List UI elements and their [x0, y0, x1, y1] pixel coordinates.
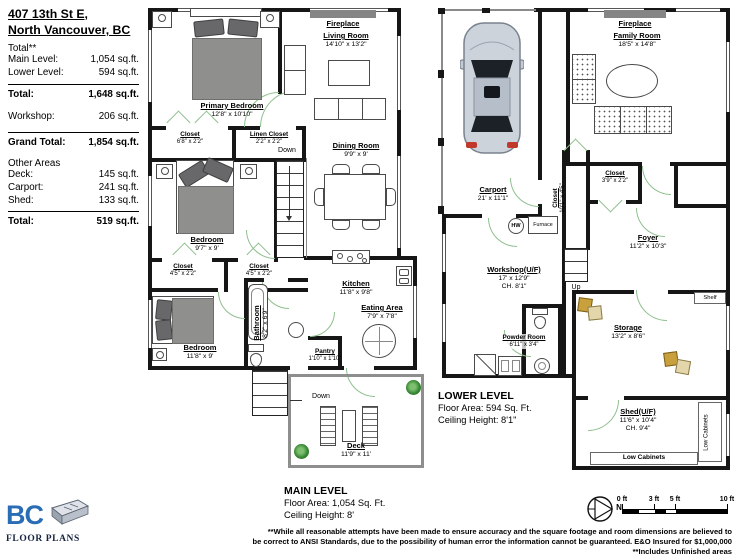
scale-tick-label: 10 ft — [717, 496, 736, 503]
scale-segment — [676, 510, 727, 513]
wall — [374, 366, 417, 370]
stair-rail — [306, 158, 307, 258]
area-row: Lower Level:594 sq.ft. — [8, 67, 139, 80]
wall — [148, 258, 162, 262]
scale-tick-label: 0 ft — [614, 496, 630, 503]
wall — [624, 396, 730, 400]
kitchen-sink — [396, 266, 412, 286]
window — [442, 234, 446, 272]
wall — [566, 8, 570, 164]
wall — [308, 366, 344, 370]
room-label-kitchen: Kitchen11'8" x 9'8" — [314, 280, 398, 297]
grand-total-row: Grand Total:1,854 sq.ft. — [8, 137, 139, 150]
room-dims: 11'2" x 10'3" — [606, 243, 690, 251]
chair — [386, 188, 396, 206]
room-name: Bathroom — [253, 293, 262, 353]
bed-headboard — [190, 8, 262, 17]
room-name: Foyer — [606, 234, 690, 243]
row-value: 1,854 sq.ft. — [88, 137, 139, 150]
staircase-up — [564, 248, 588, 282]
window — [397, 36, 401, 110]
area-row: Main Level:1,054 sq.ft. — [8, 54, 139, 67]
wall — [558, 304, 562, 378]
window — [148, 30, 152, 102]
up-label: Up — [558, 284, 594, 292]
row-value: 594 sq.ft. — [99, 67, 139, 80]
room-name: Closet — [228, 263, 290, 271]
toilet — [532, 308, 548, 315]
divider — [8, 211, 139, 212]
door-arc — [636, 290, 667, 321]
room-label-eating: Eating Area7'9" x 7'8" — [346, 304, 418, 321]
lamp-circle — [266, 14, 274, 22]
room-label-pantry: Pantry1'10" x 1'10" — [296, 348, 354, 363]
room-label-dining: Dining Room9'9" x 9' — [316, 142, 396, 159]
nightstand-lamp-icon — [240, 164, 257, 179]
room-label-shed: Shed(U/F)11'6" x 10'4"CH. 9'4" — [596, 408, 680, 433]
room-label-deck: Deck11'9" x 11' — [318, 442, 394, 459]
room-dims: 13'2" x 8'6" — [590, 333, 666, 341]
area-row: Deck:145 sq.ft. — [8, 169, 139, 182]
armchair — [284, 45, 306, 95]
fireplace — [310, 10, 376, 18]
north-compass-icon — [586, 494, 616, 524]
chair — [332, 164, 350, 174]
room-label-closet1: Closet6'8" x 2'2" — [152, 131, 228, 146]
window — [676, 8, 720, 12]
carport-post — [438, 138, 444, 146]
bed-blanket — [178, 186, 234, 234]
row-value: 241 sq.ft. — [99, 182, 139, 195]
total-row: Total:1,648 sq.ft. — [8, 89, 139, 102]
room-dims: 8'2" x 6'9" — [262, 293, 270, 353]
row-value: 1,054 sq.ft. — [91, 54, 139, 67]
room-name: Closet — [552, 160, 560, 236]
window — [726, 306, 730, 350]
nightstand-lamp-icon — [260, 11, 280, 28]
room-name: Shed(U/F) — [596, 408, 680, 417]
lamp-circle — [158, 14, 166, 22]
wall — [670, 162, 730, 166]
main-level-footer: MAIN LEVEL Floor Area: 1,054 Sq. Ft. Cei… — [284, 485, 444, 521]
window — [726, 42, 730, 112]
disclaimer-line: be correct to ANSI Standards, due to the… — [236, 537, 732, 547]
row-label: Workshop: — [8, 111, 55, 124]
room-dims: 9'9" x 9' — [316, 151, 396, 159]
room-label-closet2: Closet4'5" x 2'2" — [150, 263, 216, 278]
room-dims: 11'8" x 9' — [160, 353, 240, 361]
nightstand-lamp-icon — [156, 164, 173, 179]
sofa — [594, 106, 672, 134]
room-name: Linen Closet — [234, 131, 304, 139]
car-icon — [460, 20, 524, 156]
area-row: Carport:241 sq.ft. — [8, 182, 139, 195]
room-dims: 6'8" x 2'2" — [152, 139, 228, 146]
window — [397, 156, 401, 248]
room-label-bathroom: Bathroom8'2" x 6'9" — [253, 293, 299, 353]
room-label-closet-small: Closet3'9" x 2'2" — [588, 170, 642, 185]
row-label: Grand Total: — [8, 137, 66, 150]
room-label-primary: Primary Bedroom12'8" x 10'10" — [184, 102, 280, 119]
powder-sink — [534, 358, 550, 374]
total-header: Total** — [8, 43, 139, 54]
burner — [337, 253, 343, 259]
room-dims: 10'1" x 4'5" — [560, 160, 567, 236]
hw-label: HW — [511, 223, 520, 229]
row-label: Main Level: — [8, 54, 58, 67]
storage-boxes-icon — [675, 359, 691, 375]
room-label-powder: Powder Room6'11" x 3'4" — [490, 334, 558, 349]
door-arc — [310, 312, 335, 337]
divider — [8, 132, 139, 133]
fireplace — [604, 10, 666, 18]
room-name: Workshop(U/F) — [466, 266, 562, 275]
carport-edge — [441, 10, 443, 214]
chair — [362, 220, 380, 230]
low-cabinets-text: Low Cabinets — [704, 407, 711, 459]
wall — [572, 290, 576, 396]
deck-chair — [362, 406, 378, 446]
carport-post — [438, 70, 444, 78]
staircase-down — [276, 160, 304, 258]
room-name: Kitchen — [314, 280, 398, 289]
bifold-door — [598, 188, 622, 212]
room-name: Bedroom — [166, 236, 248, 245]
scale-tick-label: 3 ft — [646, 496, 662, 503]
row-value: 133 sq.ft. — [99, 195, 139, 208]
room-name: Carport — [456, 186, 530, 195]
room-label-fireplace: Fireplace — [590, 20, 680, 29]
room-dims: 11'8" x 9'8" — [314, 289, 398, 297]
deck-table — [342, 410, 356, 442]
row-label: Shed: — [8, 195, 34, 208]
logo-plan-graphic — [38, 498, 90, 530]
room-label-bedroom3: Bedroom11'8" x 9' — [160, 344, 240, 361]
sofa — [314, 98, 386, 120]
scale-bar — [622, 509, 728, 514]
laundry-sink — [498, 356, 522, 376]
level-title: LOWER LEVEL — [438, 390, 598, 403]
chair — [332, 220, 350, 230]
bed-blanket — [172, 298, 214, 344]
area-summary-panel: 407 13th St E, North Vancouver, BC Total… — [8, 6, 139, 229]
room-name: Storage — [590, 324, 666, 333]
room-dims: 17' x 12'9" — [466, 275, 562, 283]
scale-segment — [623, 510, 639, 513]
lamp-circle — [245, 167, 253, 175]
window — [148, 176, 152, 226]
bed-blanket — [192, 38, 262, 100]
level-ceiling: Ceiling Height: 8'1" — [438, 415, 598, 427]
deck-steps — [252, 370, 288, 416]
disclaimer: **While all reasonable attempts have bee… — [236, 527, 732, 557]
room-name: Family Room — [592, 32, 682, 41]
disclaimer-line: **Includes Unfinished areas — [236, 547, 732, 557]
room-dims: 9'7" x 9' — [166, 245, 248, 253]
room-name: Primary Bedroom — [184, 102, 280, 111]
nightstand-lamp-icon — [152, 11, 172, 28]
room-dims: 6'11" x 3'4" — [490, 342, 558, 349]
room-dims: 18'5" x 14'8" — [592, 41, 682, 49]
label-low-cabinets-right: Low Cabinets — [704, 407, 717, 459]
wall — [148, 126, 166, 130]
sink-bowl — [399, 278, 409, 284]
wall — [674, 166, 678, 208]
wall — [288, 278, 308, 282]
main-level-plan: Fireplace Living Room14'10" x 13'2" Prim… — [148, 8, 438, 560]
wall — [626, 200, 642, 204]
shelf: Shelf — [694, 292, 726, 304]
burner — [362, 258, 367, 263]
carport-post — [438, 8, 445, 14]
pillow — [155, 319, 173, 341]
room-label-workshop: Workshop(U/F)17' x 12'9"CH. 8'1" — [466, 266, 562, 291]
room-label-linen: Linen Closet2'2" x 2'2" — [234, 131, 304, 146]
row-label: Carport: — [8, 182, 43, 195]
toilet-bowl — [250, 353, 262, 367]
laundry-tub — [474, 354, 496, 376]
room-dims: 12'8" x 10'10" — [184, 111, 280, 119]
room-name: Living Room — [304, 32, 388, 41]
down-text: Down — [300, 393, 342, 401]
room-label-living: Living Room14'10" x 13'2" — [304, 32, 388, 49]
low-cabinets-text: Low Cabinets — [590, 454, 698, 462]
page-title-line2: North Vancouver, BC — [8, 22, 139, 38]
pillow — [193, 18, 225, 37]
logo-floor-plans-text: FLOOR PLANS — [6, 534, 118, 544]
room-label-bedroom2: Bedroom9'7" x 9' — [166, 236, 248, 253]
room-label-family: Family Room18'5" x 14'8" — [592, 32, 682, 49]
door-arc — [642, 166, 671, 195]
dining-table — [324, 174, 386, 220]
room-dims: 4'5" x 2'2" — [228, 271, 290, 278]
room-name: Closet — [152, 131, 228, 139]
toilet-bowl — [534, 316, 546, 329]
storage-boxes-icon — [587, 305, 602, 320]
potted-plant-icon — [406, 380, 421, 395]
room-name: Dining Room — [316, 142, 396, 151]
room-dims: 14'10" x 13'2" — [304, 41, 388, 49]
room-name: Fireplace — [306, 20, 380, 29]
carport-post — [482, 8, 490, 13]
sink-bowl — [399, 269, 409, 276]
room-name: Eating Area — [346, 304, 418, 313]
stove — [332, 250, 370, 264]
room-label-fireplace: Fireplace — [306, 20, 380, 29]
round-table — [362, 324, 396, 358]
floor-plan-sheet: 407 13th St E, North Vancouver, BC Total… — [0, 0, 736, 560]
down-text: Down — [262, 147, 312, 155]
room-dims: 4'5" x 2'2" — [150, 271, 216, 278]
hot-water-tank: HW — [508, 218, 524, 234]
workshop-row: Workshop:206 sq.ft. — [8, 111, 139, 124]
room-label-carport: Carport21' x 11'1" — [456, 186, 530, 203]
bc-floor-plans-logo: BC FLOOR PLANS — [6, 500, 118, 544]
row-label: Lower Level: — [8, 67, 64, 80]
room-name: Pantry — [296, 348, 354, 356]
other-areas-header: Other Areas — [8, 158, 139, 169]
room-name: Bedroom — [160, 344, 240, 353]
row-label: Total: — [8, 216, 34, 229]
window — [726, 414, 730, 456]
room-dims: 1'10" x 1'10" — [296, 356, 354, 363]
chair — [314, 188, 324, 206]
door-arc — [218, 292, 245, 319]
room-dims: 11'9" x 11' — [318, 451, 394, 459]
lower-level-footer: LOWER LEVEL Floor Area: 594 Sq. Ft. Ceil… — [438, 390, 598, 426]
pillow — [227, 18, 259, 37]
deck-chair — [320, 406, 336, 446]
wall — [148, 288, 218, 292]
potted-plant-icon — [294, 444, 309, 459]
room-label-storage: Storage13'2" x 8'6" — [590, 324, 666, 341]
level-title: MAIN LEVEL — [284, 485, 444, 498]
shelf-label: Shelf — [703, 295, 716, 301]
room-name: Fireplace — [590, 20, 680, 29]
divider — [8, 84, 139, 85]
room-name: Powder Room — [490, 334, 558, 342]
burner — [347, 256, 353, 262]
row-value: 206 sq.ft. — [99, 111, 139, 124]
room-ch: CH. 8'1" — [466, 283, 562, 291]
carport-post — [438, 206, 444, 214]
scale-tick-label: 5 ft — [667, 496, 683, 503]
wall — [572, 466, 730, 470]
label-low-cabinets-bottom: Low Cabinets — [590, 454, 698, 462]
room-dims: 2'2" x 2'2" — [234, 139, 304, 146]
wall — [538, 8, 542, 180]
furnace-label: Furnace — [533, 222, 552, 228]
row-label: Total: — [8, 89, 34, 102]
coffee-table — [328, 60, 370, 86]
up-text: Up — [558, 284, 594, 292]
room-name: Closet — [588, 170, 642, 178]
lamp-circle — [161, 167, 169, 175]
armchair — [572, 54, 596, 104]
row-value: 145 sq.ft. — [99, 169, 139, 182]
row-label: Deck: — [8, 169, 33, 182]
stair-arrowhead — [286, 216, 292, 221]
page-title-line1: 407 13th St E, — [8, 6, 139, 22]
room-name: Deck — [318, 442, 394, 451]
room-name: Closet — [150, 263, 216, 271]
down-label: Down — [300, 393, 342, 401]
level-area: Floor Area: 1,054 Sq. Ft. — [284, 498, 444, 510]
area-row: Shed:133 sq.ft. — [8, 195, 139, 208]
window — [442, 304, 446, 342]
room-label-foyer: Foyer11'2" x 10'3" — [606, 234, 690, 251]
scale-segment — [655, 510, 666, 513]
oval-table — [606, 64, 658, 98]
down-label: Down — [262, 147, 312, 155]
room-ch: CH. 9'4" — [596, 425, 680, 433]
level-ceiling: Ceiling Height: 8' — [284, 510, 444, 522]
stair-arrow-line — [289, 166, 290, 216]
room-dims: 7'9" x 7'8" — [346, 313, 418, 321]
wall — [674, 204, 730, 208]
room-label-closet3: Closet4'5" x 2'2" — [228, 263, 290, 278]
level-area: Floor Area: 594 Sq. Ft. — [438, 403, 598, 415]
room-dims: 11'6" x 10'4" — [596, 417, 680, 425]
row-value: 1,648 sq.ft. — [88, 89, 139, 102]
room-dims: 21' x 11'1" — [456, 195, 530, 203]
pillow — [155, 299, 173, 321]
lower-level-plan: HW Furnace Shelf Carport21' x 11'1" Fire… — [438, 8, 736, 560]
other-total-row: Total:519 sq.ft. — [8, 216, 139, 229]
wall — [442, 214, 482, 218]
room-dims: 3'9" x 2'2" — [588, 178, 642, 185]
row-value: 519 sq.ft. — [97, 216, 139, 229]
disclaimer-line: **While all reasonable attempts have bee… — [236, 527, 732, 537]
chair — [362, 164, 380, 174]
